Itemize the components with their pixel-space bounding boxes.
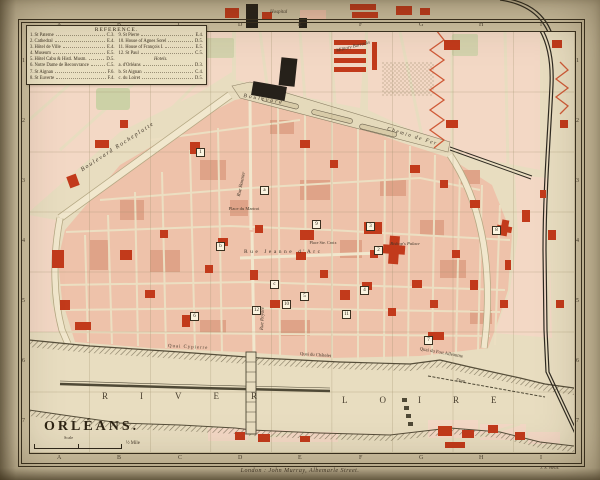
map-marker-11: 11 <box>342 310 351 319</box>
map-marker-7: 7 <box>424 336 433 345</box>
legend-left-column: 1.St PaterneC.3. 2.CathedralE.4. 3.Hôtel… <box>30 33 115 82</box>
grid-row-left-6: 6 <box>22 358 25 364</box>
imprint: London : John Murray, Albemarle Street. <box>241 468 360 475</box>
grid-letter-bottom-e: E <box>298 455 302 461</box>
grid-letter-bottom-g: G <box>419 455 423 461</box>
grid-row-left-3: 3 <box>22 178 25 184</box>
map-marker-a: a <box>260 186 269 195</box>
grid-row-right-2: 2 <box>576 118 579 124</box>
label-rue-jeanne-darc: Rue Jeanne d'Arc <box>244 249 323 255</box>
map-marker-b: b <box>216 242 225 251</box>
label-loire: LOIRE <box>342 396 529 406</box>
grid-row-right-3: 3 <box>576 178 579 184</box>
scale-label: Scale <box>64 436 73 441</box>
map-marker-10: 10 <box>282 300 291 309</box>
label-bishops-palace: Bishop's Palace <box>390 241 420 246</box>
grid-letter-top-h: H <box>479 22 483 28</box>
map-marker-1: 1 <box>196 148 205 157</box>
grid-letter-bottom-i: I <box>540 455 542 461</box>
grid-letter-bottom-d: D <box>238 455 242 461</box>
grid-letter-bottom-b: B <box>117 455 121 461</box>
grid-letter-top-e: E <box>298 22 302 28</box>
grid-row-right-4: 4 <box>576 238 579 244</box>
label-river: RIVER <box>102 392 289 402</box>
map-marker-c: c <box>270 280 279 289</box>
engraver-credit: J. S. Wells. <box>540 466 559 471</box>
grid-letter-top-d: D <box>238 22 242 28</box>
grid-row-left-5: 5 <box>22 298 25 304</box>
map-photo: A B C D E F G H I A B C D E F G H I 1 2 … <box>0 0 600 480</box>
grid-row-right-1: 1 <box>576 58 579 64</box>
map-title: ORLÉANS. <box>44 419 139 435</box>
grid-row-left-7: 7 <box>22 418 25 424</box>
grid-letter-top-i: I <box>540 22 542 28</box>
grid-row-right-6: 6 <box>576 358 579 364</box>
grid-letter-top-f: F <box>359 22 362 28</box>
grid-row-right-5: 5 <box>576 298 579 304</box>
map-marker-6: 6 <box>190 312 199 321</box>
map-marker-5: 5 <box>300 292 309 301</box>
grid-row-left-2: 2 <box>22 118 25 124</box>
grid-letter-bottom-f: F <box>359 455 362 461</box>
garden-field <box>382 62 434 96</box>
grid-letter-bottom-a: A <box>57 455 61 461</box>
map-marker-4: 4 <box>360 286 369 295</box>
grid-row-right-7: 7 <box>576 418 579 424</box>
grid-letter-top-g: G <box>419 22 423 28</box>
legend-entry: c.du LoiretD.5. <box>119 76 204 82</box>
scale-bar <box>34 444 122 449</box>
map-marker-12: 12 <box>252 306 261 315</box>
grid-letter-bottom-c: C <box>178 455 182 461</box>
map-marker-9: 9 <box>312 220 321 229</box>
label-place-du-martroi: Place du Martroi <box>226 206 262 211</box>
grid-row-left-1: 1 <box>22 58 25 64</box>
legend-box: REFERENCE. 1.St PaterneC.3. 2.CathedralE… <box>26 25 207 85</box>
scale-value: ½ Mile <box>126 441 140 446</box>
legend-right-column: 9.St PierreE.4. 10.House of Agnes SorelD… <box>119 33 204 82</box>
label-hospital: Hospital <box>270 10 287 16</box>
grid-row-left-4: 4 <box>22 238 25 244</box>
grid-letter-bottom-h: H <box>479 455 483 461</box>
map-marker-3: 3 <box>366 222 375 231</box>
map-marker-8: 8 <box>492 226 501 235</box>
legend-entry: 8.St EuverteF.4. <box>30 76 115 82</box>
label-place-ste-croix: Place Ste. Croix <box>308 241 338 246</box>
map-marker-2: 2 <box>374 246 383 255</box>
